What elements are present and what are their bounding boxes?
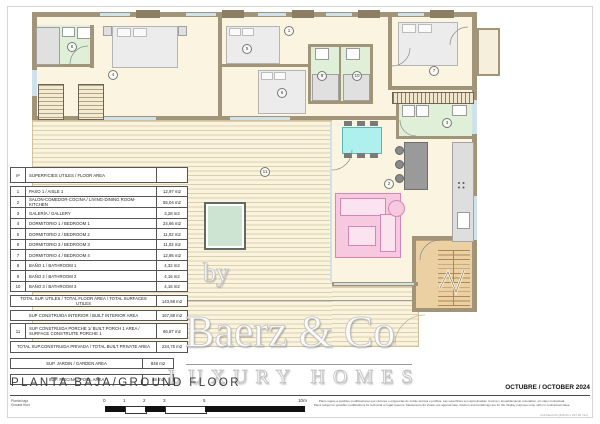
row-label: BAÑO 1 / BATHROOM 1	[26, 261, 156, 270]
row-label: BAÑO 3 / BATHROOM 3	[26, 282, 156, 291]
row-label: GALERÍA / GALLERY	[26, 208, 156, 217]
row-number: 8	[11, 261, 26, 270]
area-table: nº SUPERFICIES UTILES / FLOOR AREA 1 PAS…	[10, 168, 188, 385]
door-arc	[420, 240, 440, 260]
row-number: 2	[11, 197, 26, 207]
scale-bar-segment	[125, 406, 147, 414]
room-label-10: 10	[352, 71, 362, 81]
scale-tick-2: 2	[143, 398, 146, 403]
row-label: TOTAL SUP.CONSTRUIDA PRIVADA / TOTAL BUI…	[11, 342, 156, 351]
row-label: DORMITORIO 2 / BEDROOM 2	[26, 229, 156, 238]
table-row: 10 BAÑO 3 / BATHROOM 3 4,16 m2	[10, 281, 188, 292]
scale-tick-0: 0	[103, 398, 106, 403]
table-row: 1 PASO 1 / AISLE 1 12,97 m2	[10, 186, 188, 197]
corner-note: Full bleed A3 (420.00 x 297.00 mm)	[440, 413, 588, 417]
row-label: SUP. JARDIN / GARDEN AREA	[11, 359, 142, 368]
row-number: 6	[11, 240, 26, 249]
row-number: 4	[11, 219, 26, 228]
subtitle-en: Ground floor	[11, 403, 30, 407]
scale-bar-segment	[145, 406, 165, 412]
row-label: PASO 1 / AISLE 1	[26, 187, 156, 196]
row-label: SUP CONSTRUIDA PORCHE 1/ BUILT PORCH 1 A…	[26, 324, 156, 338]
table-row: 2 SALON-COMEDOR-COCINA / LIVING-DINING R…	[10, 196, 188, 208]
row-value: 4,16 m2	[156, 282, 187, 291]
header-num: nº	[11, 168, 26, 182]
row-value: 12,97 m2	[156, 187, 187, 196]
room-label-9: 9	[317, 71, 327, 81]
scale-tick-1: 1	[123, 398, 126, 403]
row-label: SUP CONSTRUIDA INTERIOR / BUILT INTERIOR…	[11, 311, 156, 320]
row-value: 4,32 m2	[156, 261, 187, 270]
scale-tick-5: 5	[203, 398, 206, 403]
table-row: 8 BAÑO 1 / BATHROOM 1 4,32 m2	[10, 260, 188, 271]
total-private-row: TOTAL SUP.CONSTRUIDA PRIVADA / TOTAL BUI…	[10, 341, 188, 352]
row-label: DORMITORIO 3 / BEDROOM 3	[26, 240, 156, 249]
row-value: 66,87 m2	[156, 324, 187, 338]
row-label: TOTAL SUP. UTILES / TOTAL FLOOR AREA / T…	[11, 296, 156, 306]
room-label-7: 7	[429, 66, 439, 76]
row-label: BAÑO 2 / BATHROOM 2	[26, 271, 156, 280]
watermark-line-top	[188, 300, 412, 301]
door-arc	[450, 27, 468, 45]
title-rule	[10, 395, 590, 396]
porch-row: 11 SUP CONSTRUIDA PORCHE 1/ BUILT PORCH …	[10, 323, 188, 339]
garden-curve	[395, 315, 425, 345]
door-arc	[392, 48, 410, 66]
row-number: 1	[11, 187, 26, 196]
row-label: DORMITORIO 1 / BEDROOM 1	[26, 219, 156, 228]
watermark-line-bottom	[186, 364, 412, 365]
disclaimer-en: Plans subject to possible modifications …	[296, 403, 588, 407]
total-utiles-row: TOTAL SUP. UTILES / TOTAL FLOOR AREA / T…	[10, 295, 188, 307]
row-value: 3,28 m2	[156, 208, 187, 217]
room-label-8: 8	[67, 42, 77, 52]
table-row: 3 GALERÍA / GALLERY 3,28 m2	[10, 207, 188, 218]
header-value	[156, 168, 187, 182]
row-value: 12,95 m2	[156, 250, 187, 259]
row-number: 10	[11, 282, 26, 291]
row-value: 11,02 m2	[156, 240, 187, 249]
garden-row: SUP. JARDIN / GARDEN AREA 848 m2	[10, 358, 174, 369]
scale-bar-segment	[205, 406, 305, 412]
room-label-4: 4	[108, 70, 118, 80]
table-row: 7 DORMITORIO 4 / BEDROOM 4 12,95 m2	[10, 249, 188, 260]
scale-tick-3: 3	[163, 398, 166, 403]
table-row: 5 DORMITORIO 2 / BEDROOM 2 11,02 m2	[10, 228, 188, 239]
room-label-11: 11	[260, 167, 270, 177]
row-value: 167,88 m2	[156, 311, 187, 320]
door-arc	[400, 120, 416, 136]
table-row: 6 DORMITORIO 3 / BEDROOM 3 11,02 m2	[10, 239, 188, 250]
row-number: 5	[11, 229, 26, 238]
subtitle: Planta baja Ground floor	[11, 399, 30, 407]
scale-bar-segment	[105, 406, 125, 412]
row-number: 3	[11, 208, 26, 217]
row-number: 9	[11, 271, 26, 280]
area-table-header: nº SUPERFICIES UTILES / FLOOR AREA	[10, 167, 188, 183]
room-label-5: 5	[242, 44, 252, 54]
row-label: SALON-COMEDOR-COCINA / LIVING-DINING ROO…	[26, 197, 156, 207]
row-value: 11,02 m2	[156, 229, 187, 238]
watermark-brand: Baerz & Co	[185, 306, 395, 357]
table-row: 4 DORMITORIO 1 / BEDROOM 1 24,66 m2	[10, 218, 188, 229]
room-label-1: 1	[284, 26, 294, 36]
room-label-2: 2	[384, 179, 394, 189]
disclaimer: Plano sujeto a posibles modificaciones p…	[296, 399, 588, 407]
row-value: 55,04 m2	[156, 197, 187, 207]
scale-bar-segment	[165, 406, 207, 414]
row-value: 143,58 m2	[156, 296, 187, 306]
door-arc	[332, 150, 352, 170]
row-label: DORMITORIO 4 / BEDROOM 4	[26, 250, 156, 259]
room-label-6: 6	[277, 88, 287, 98]
watermark-by: by	[203, 258, 229, 288]
area-table-body: 1 PASO 1 / AISLE 1 12,97 m2 2 SALON-COME…	[10, 186, 188, 293]
row-number: 11	[11, 324, 26, 338]
outdoor-annex	[477, 28, 500, 76]
row-value: 234,75 m2	[156, 342, 187, 351]
room-label-3: 3	[442, 118, 452, 128]
built-interior-row: SUP CONSTRUIDA INTERIOR / BUILT INTERIOR…	[10, 310, 188, 321]
page-title: PLANTA BAJA/GROUND FLOOR	[11, 377, 241, 389]
row-value: 4,16 m2	[156, 271, 187, 280]
table-row: 9 BAÑO 2 / BATHROOM 2 4,16 m2	[10, 270, 188, 281]
row-number: 7	[11, 250, 26, 259]
header-label: SUPERFICIES UTILES / FLOOR AREA	[26, 168, 156, 182]
date-label: OCTUBRE / OCTOBER 2024	[440, 384, 590, 391]
row-value: 24,66 m2	[156, 219, 187, 228]
